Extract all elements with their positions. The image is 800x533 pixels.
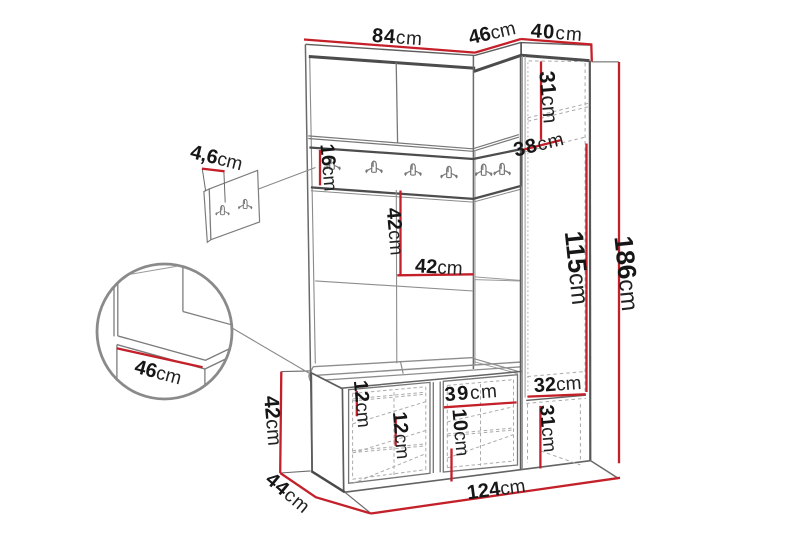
- svg-text:42cm: 42cm: [382, 207, 408, 256]
- svg-text:32cm: 32cm: [533, 372, 582, 397]
- svg-text:12cm: 12cm: [349, 379, 375, 428]
- svg-text:42cm: 42cm: [259, 395, 286, 447]
- svg-text:42cm: 42cm: [414, 255, 463, 279]
- svg-text:31cm: 31cm: [535, 404, 561, 453]
- svg-text:12cm: 12cm: [388, 411, 414, 460]
- svg-text:40cm: 40cm: [530, 20, 584, 46]
- svg-text:84cm: 84cm: [371, 25, 423, 50]
- svg-text:31cm: 31cm: [534, 70, 563, 124]
- svg-text:10cm: 10cm: [447, 408, 473, 457]
- svg-text:39cm: 39cm: [444, 380, 500, 406]
- svg-text:16cm: 16cm: [315, 143, 341, 192]
